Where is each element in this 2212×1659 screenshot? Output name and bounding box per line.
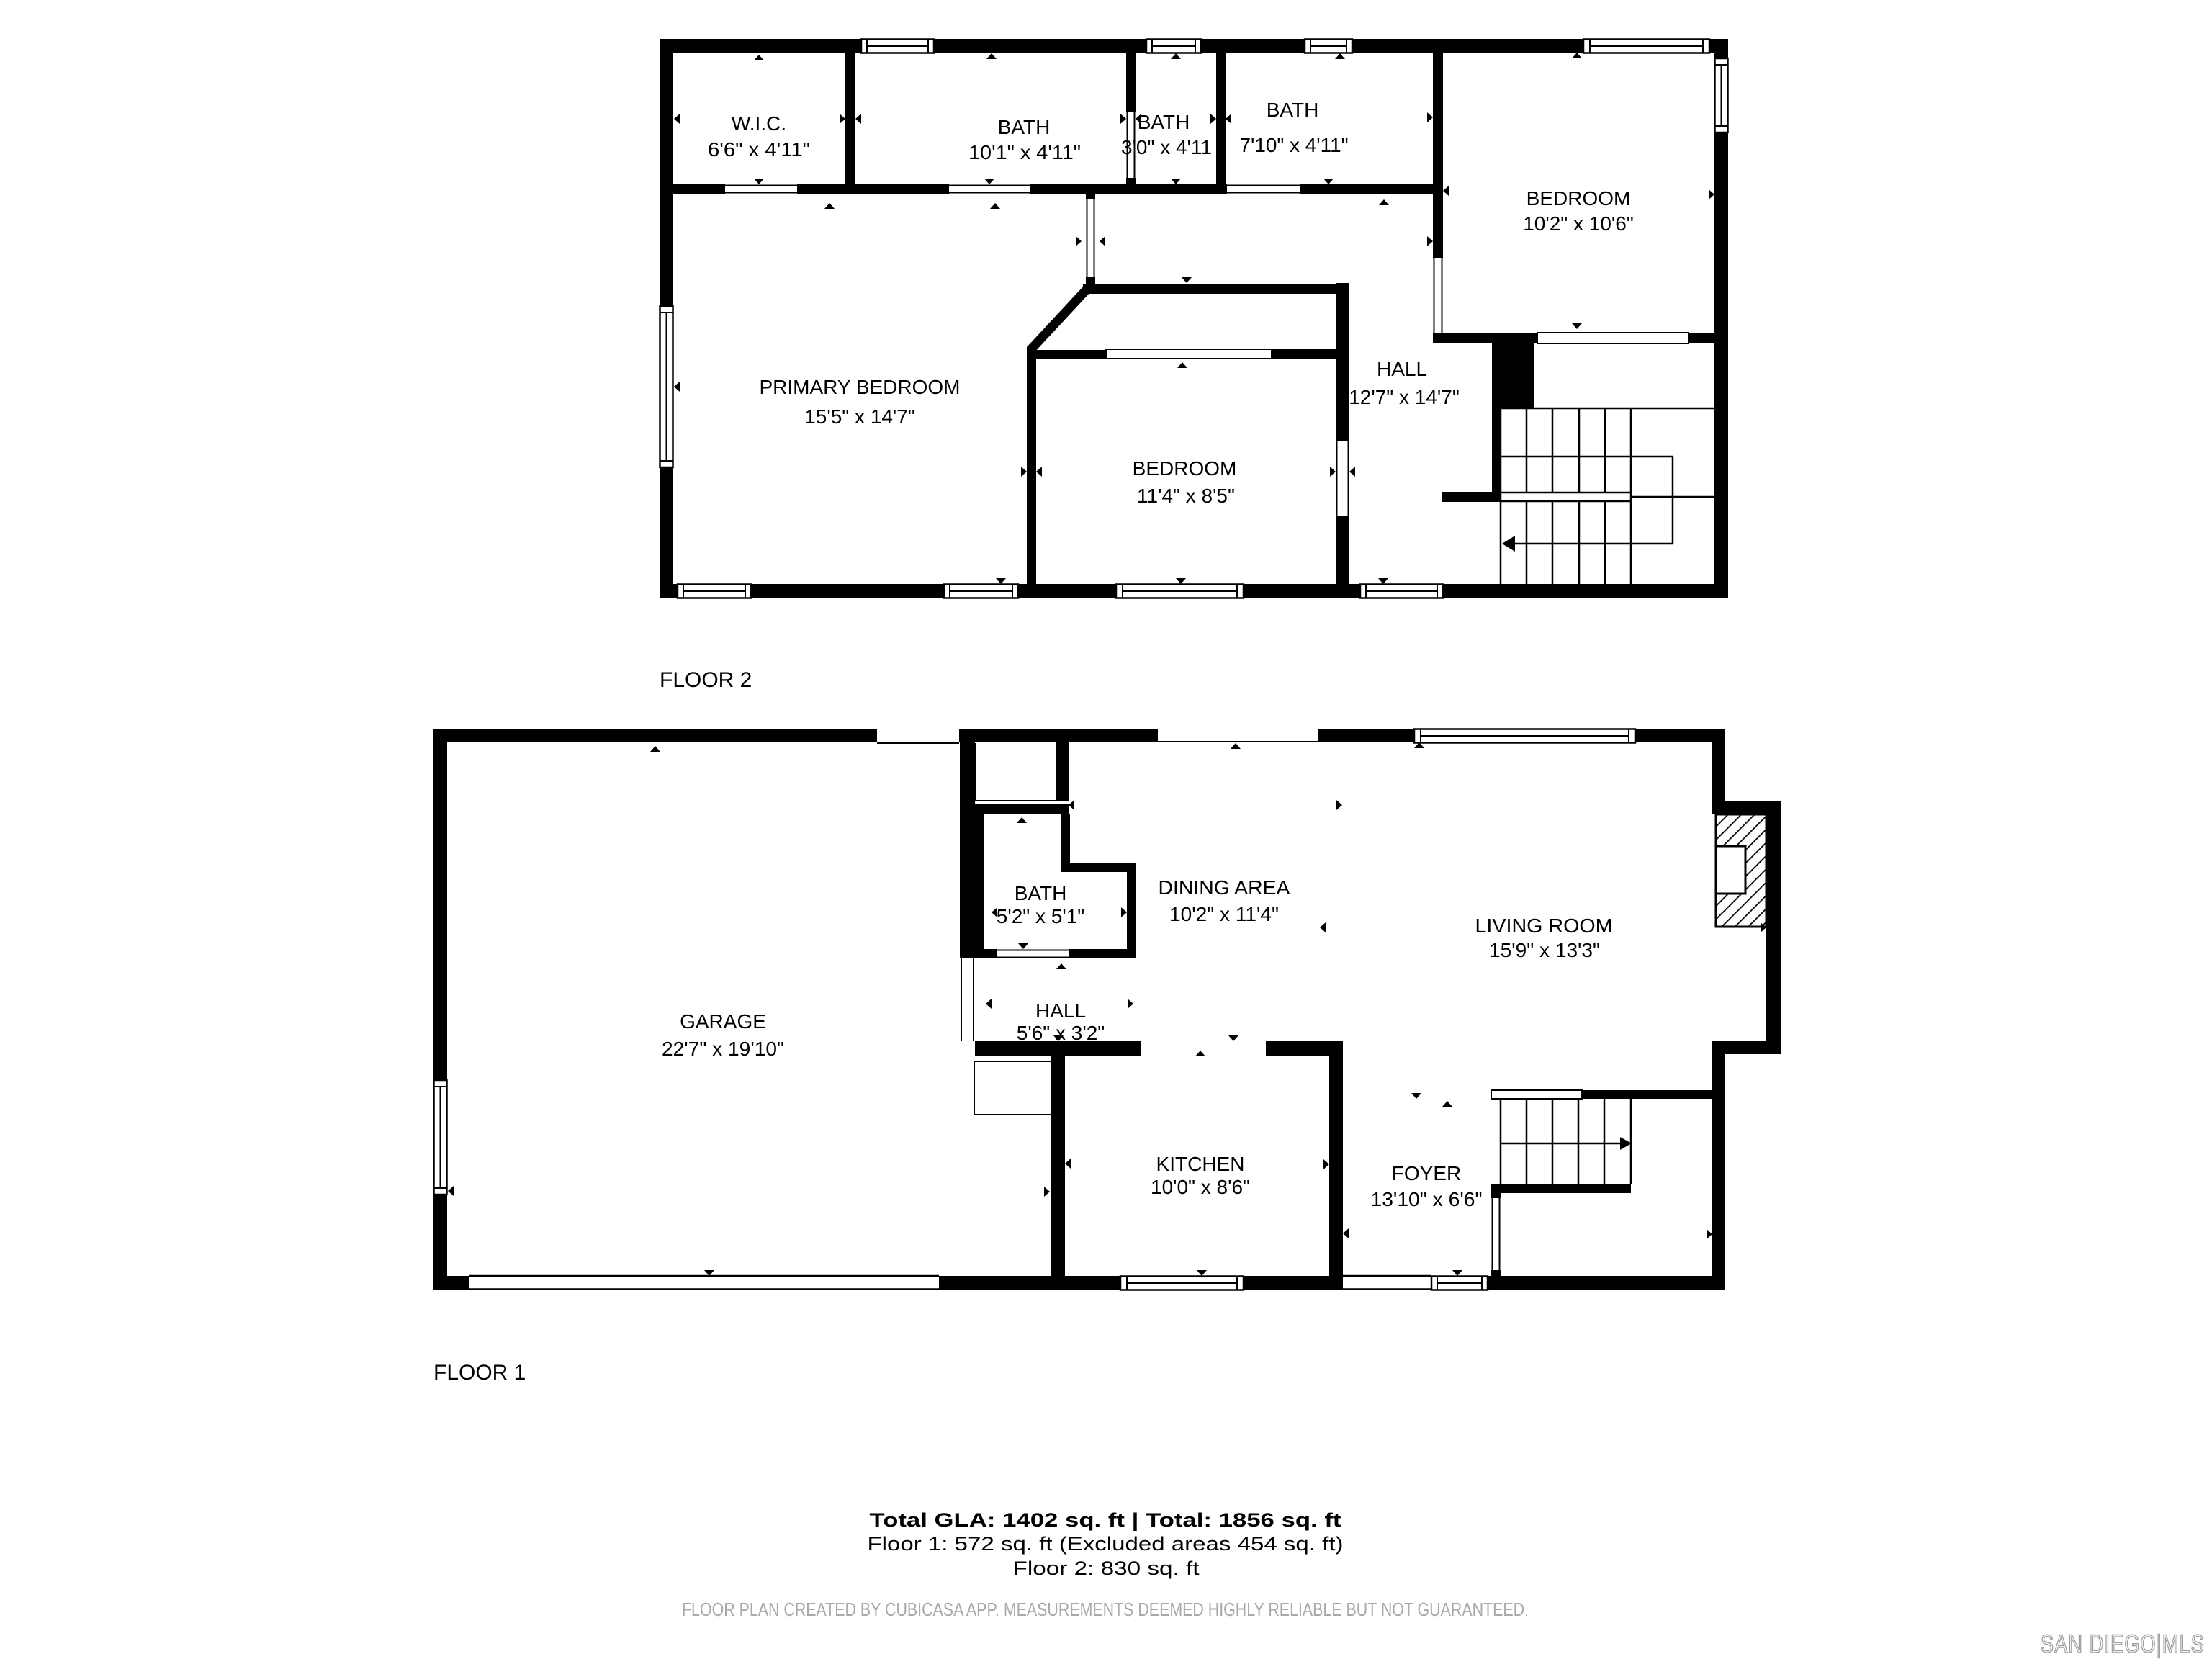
svg-text:FLOOR PLAN CREATED BY CUBICASA: FLOOR PLAN CREATED BY CUBICASA APP. MEAS… <box>682 1599 1529 1620</box>
svg-text:BATH: BATH <box>1015 882 1067 904</box>
svg-text:10'0" x 8'6": 10'0" x 8'6" <box>1151 1176 1250 1198</box>
svg-text:5'6" x 3'2": 5'6" x 3'2" <box>1017 1022 1105 1044</box>
svg-text:10'2" x 11'4": 10'2" x 11'4" <box>1169 903 1279 925</box>
svg-text:DINING AREA: DINING AREA <box>1159 876 1290 899</box>
svg-text:BATH: BATH <box>1138 111 1190 133</box>
svg-text:BATH: BATH <box>998 116 1051 138</box>
svg-text:KITCHEN: KITCHEN <box>1156 1153 1245 1175</box>
svg-text:Floor 2: 830 sq. ft: Floor 2: 830 sq. ft <box>1013 1557 1200 1579</box>
svg-text:PRIMARY BEDROOM: PRIMARY BEDROOM <box>759 376 960 398</box>
svg-text:13'10" x 6'6": 13'10" x 6'6" <box>1371 1188 1483 1210</box>
svg-text:LIVING ROOM: LIVING ROOM <box>1475 914 1613 937</box>
svg-text:W.I.C.: W.I.C. <box>732 112 786 135</box>
svg-text:3'0" x 4'11: 3'0" x 4'11 <box>1121 136 1212 158</box>
svg-text:22'7" x 19'10": 22'7" x 19'10" <box>662 1038 784 1060</box>
svg-text:FLOOR 1: FLOOR 1 <box>433 1361 526 1385</box>
svg-text:HALL: HALL <box>1377 358 1427 380</box>
svg-text:15'9" x 13'3": 15'9" x 13'3" <box>1489 939 1600 961</box>
svg-text:7'10" x 4'11": 7'10" x 4'11" <box>1240 134 1349 156</box>
svg-text:SAN DIEGO|MLS: SAN DIEGO|MLS <box>2041 1630 2205 1658</box>
svg-text:5'2" x 5'1": 5'2" x 5'1" <box>997 905 1084 927</box>
svg-text:GARAGE: GARAGE <box>680 1010 766 1033</box>
svg-text:HALL: HALL <box>1035 999 1086 1022</box>
svg-text:10'1" x 4'11": 10'1" x 4'11" <box>968 141 1081 163</box>
svg-text:12'7" x 14'7": 12'7" x 14'7" <box>1349 386 1460 408</box>
svg-text:BATH: BATH <box>1267 99 1319 121</box>
svg-text:BEDROOM: BEDROOM <box>1133 457 1237 480</box>
svg-text:15'5" x 14'7": 15'5" x 14'7" <box>804 405 915 428</box>
svg-text:10'2" x 10'6": 10'2" x 10'6" <box>1523 212 1634 235</box>
svg-text:FLOOR 2: FLOOR 2 <box>660 668 752 692</box>
svg-text:Floor 1: 572 sq. ft (Excluded: Floor 1: 572 sq. ft (Excluded areas 454 … <box>868 1533 1344 1555</box>
svg-text:Total GLA: 1402 sq. ft | Total: Total GLA: 1402 sq. ft | Total: 1856 sq.… <box>870 1509 1341 1531</box>
svg-text:6'6" x 4'11": 6'6" x 4'11" <box>708 138 810 161</box>
svg-text:FOYER: FOYER <box>1392 1162 1461 1184</box>
svg-text:11'4" x 8'5": 11'4" x 8'5" <box>1137 485 1235 507</box>
svg-text:BEDROOM: BEDROOM <box>1527 187 1631 210</box>
